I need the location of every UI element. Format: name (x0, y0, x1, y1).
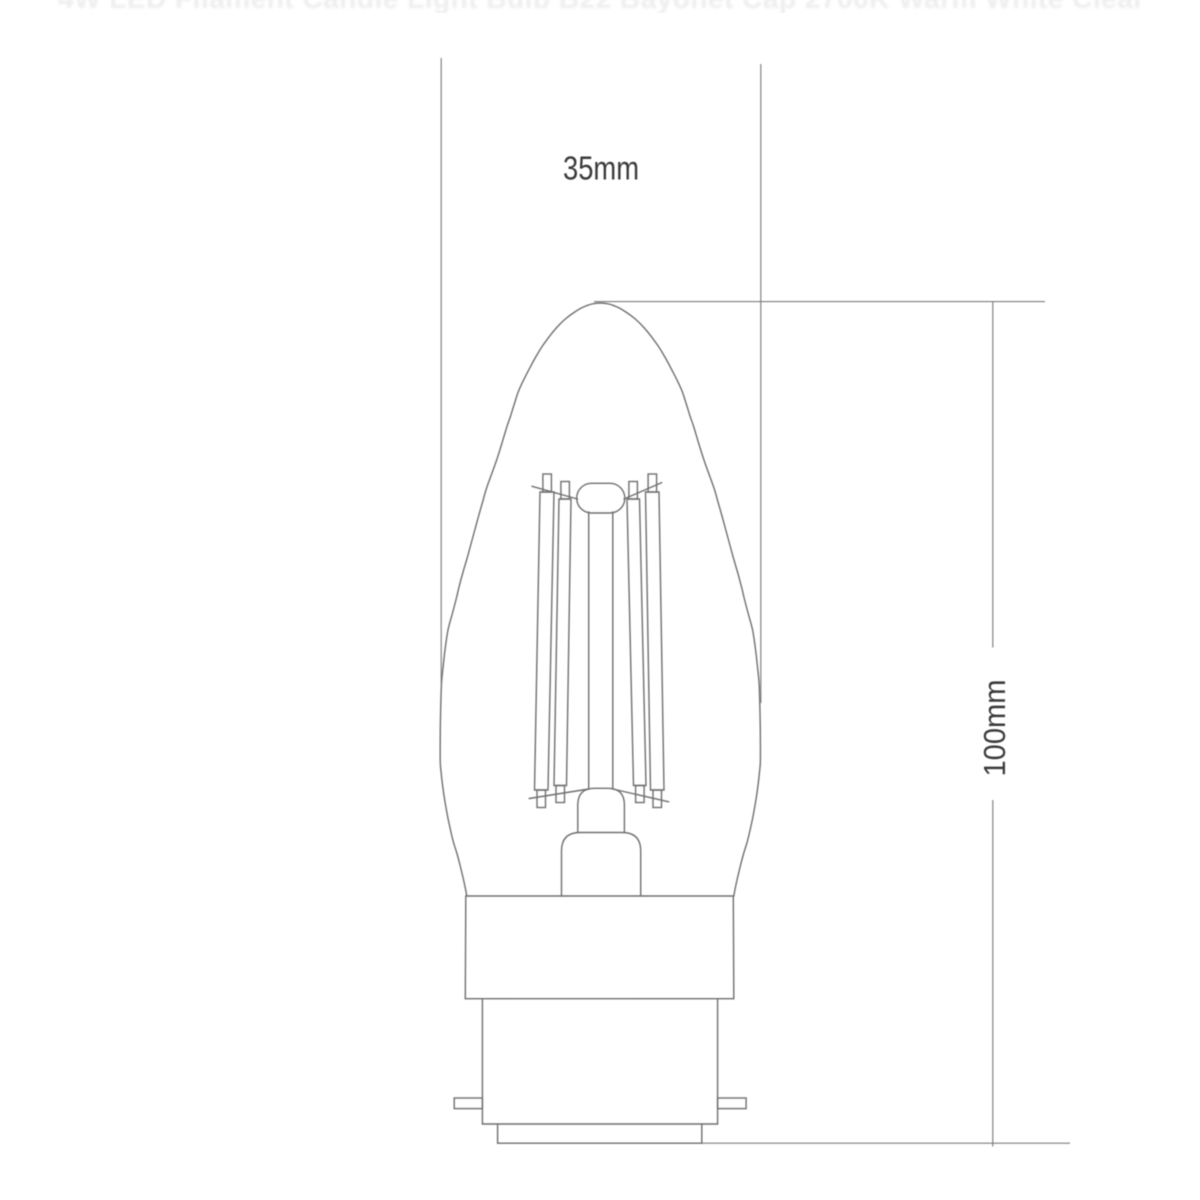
svg-text:100mm: 100mm (978, 680, 1012, 777)
svg-text:35mm: 35mm (563, 150, 639, 187)
